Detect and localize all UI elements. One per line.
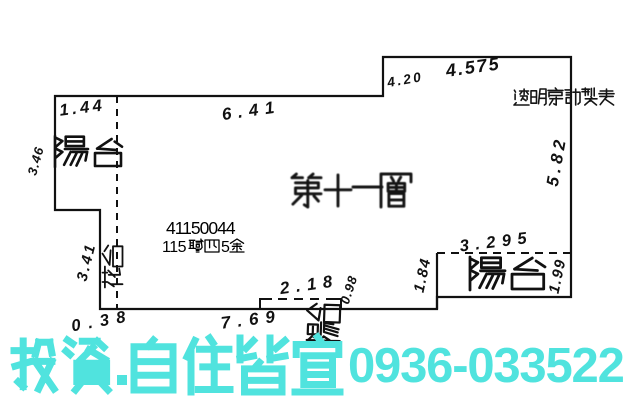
svg-text:0936-033522: 0936-033522 (348, 339, 624, 393)
svg-text:115: 115 (162, 239, 187, 256)
svg-text:5: 5 (221, 239, 230, 256)
svg-text:41150044: 41150044 (166, 218, 236, 238)
